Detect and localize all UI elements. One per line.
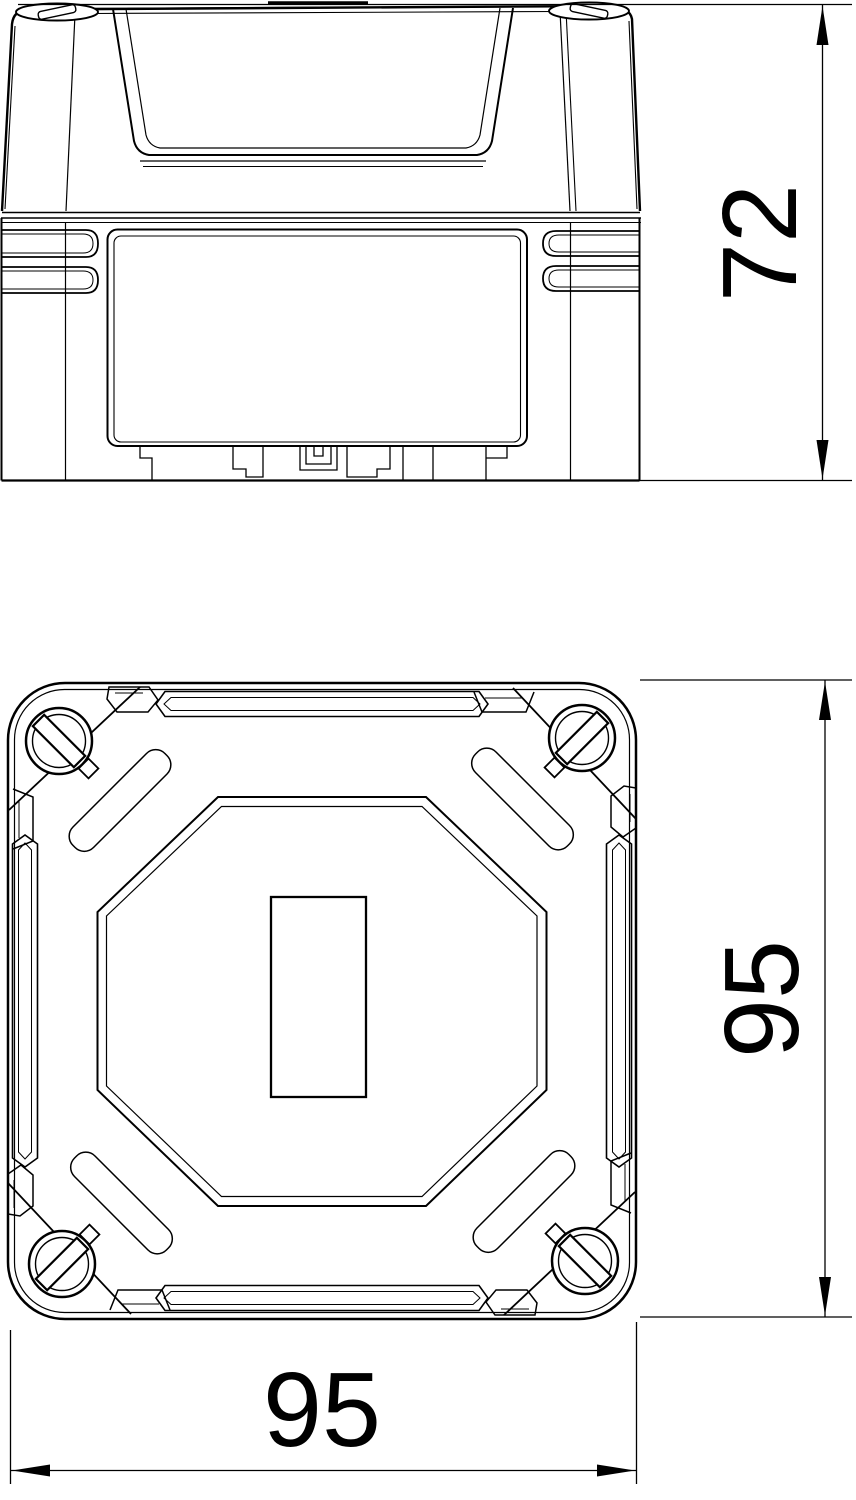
arrow-up-icon (817, 6, 829, 45)
dimension-label-72: 72 (701, 184, 819, 302)
side-elevation-view (1, 3, 641, 481)
corner-assembly (9, 687, 176, 857)
arrow-right-icon (597, 1465, 635, 1477)
dimension-label-95-vertical: 95 (703, 940, 821, 1058)
technical-drawing: 72 95 95 (0, 0, 856, 1500)
edge-channel (156, 692, 488, 717)
corner-screw (26, 708, 98, 778)
dimension-plan-width: 95 (11, 1322, 637, 1484)
dimension-label-95-horizontal: 95 (263, 1351, 381, 1469)
central-knockout (271, 897, 366, 1097)
side-bottom-latch-band (140, 446, 507, 481)
arrow-down-icon (817, 440, 829, 479)
side-rib-slots-right (543, 231, 640, 291)
arrow-down-icon (819, 1277, 831, 1316)
arrow-up-icon (819, 682, 831, 721)
arrow-left-icon (12, 1465, 50, 1477)
drawing-canvas: 72 95 95 (0, 0, 856, 1500)
top-plan-view (8, 683, 636, 1319)
dimension-side-height: 72 (18, 5, 852, 481)
lid-handle-recess (113, 8, 513, 167)
dimension-plan-depth: 95 (640, 680, 852, 1317)
side-screw-left (16, 4, 98, 21)
side-front-panel (108, 230, 528, 447)
side-rib-slots-left (1, 230, 98, 293)
lid-octagon (98, 797, 547, 1206)
